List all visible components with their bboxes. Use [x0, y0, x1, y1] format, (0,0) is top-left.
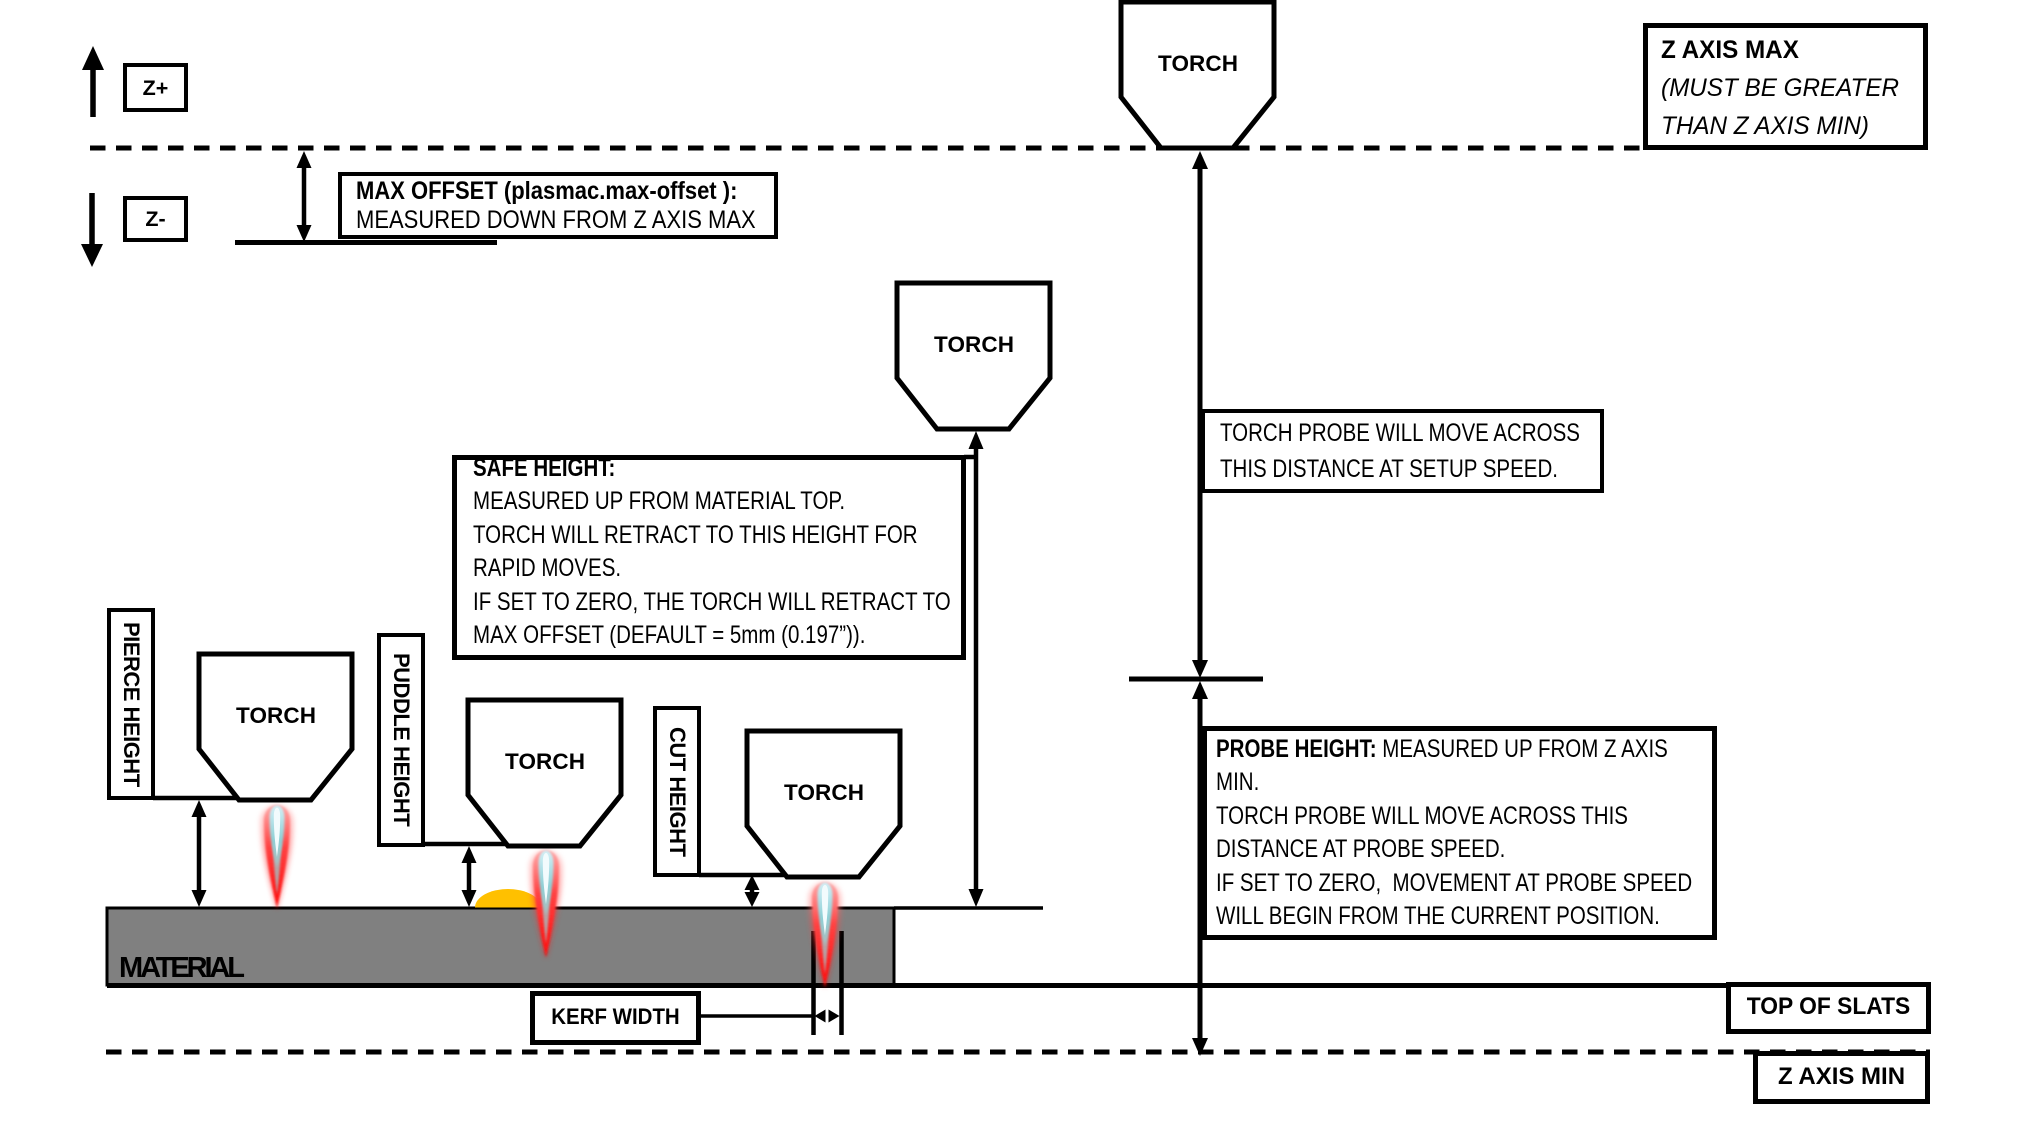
svg-text:MATERIAL: MATERIAL [119, 952, 245, 984]
